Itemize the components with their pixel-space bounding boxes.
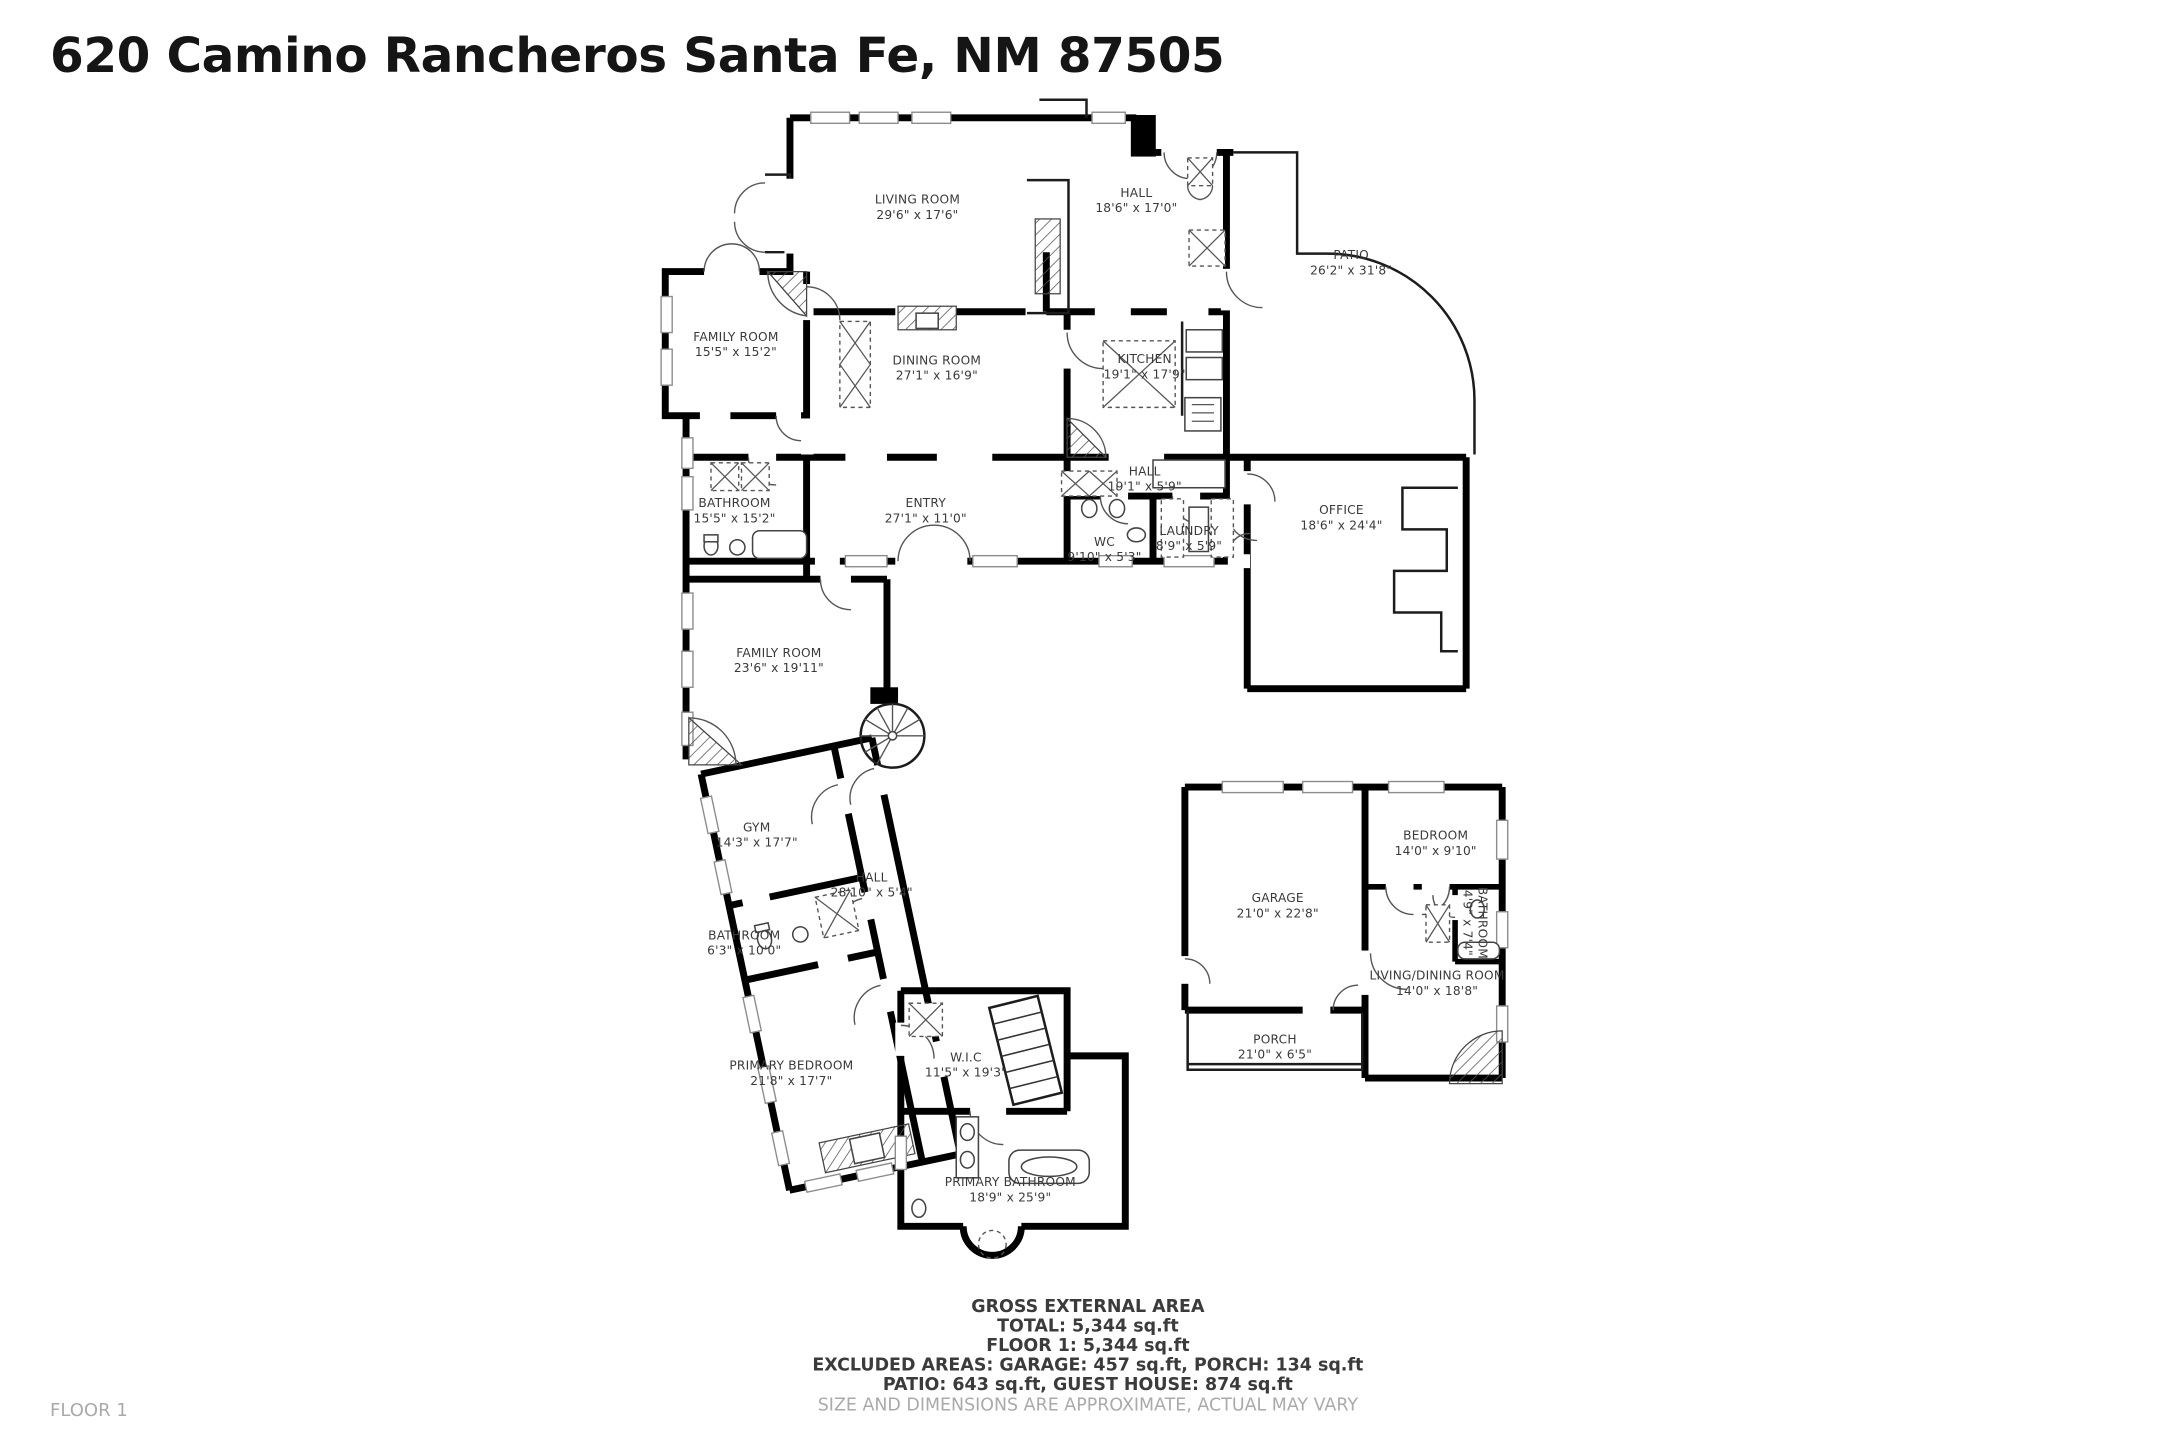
- door-arc: [735, 183, 765, 252]
- door-arc: [1333, 985, 1358, 1010]
- range: [1185, 398, 1221, 431]
- room-label-family-room-2: FAMILY ROOM23'6" x 19'11": [734, 646, 824, 675]
- sink: [960, 1124, 974, 1141]
- toilet: [1127, 528, 1145, 542]
- patio-outline: [1233, 152, 1474, 454]
- sink: [730, 540, 745, 555]
- living-room-fireplace: [1035, 219, 1060, 294]
- room-labels: LIVING ROOM29'6" x 17'6" HALL18'6" x 17'…: [693, 186, 1504, 1205]
- guest-fireplace: [1450, 1031, 1503, 1084]
- room-label-entry: ENTRY27'1" x 11'0": [885, 496, 967, 525]
- room-label-living-room: LIVING ROOM29'6" x 17'6": [875, 193, 960, 222]
- area-summary: GROSS EXTERNAL AREA TOTAL: 5,344 sq.ft F…: [812, 1297, 1363, 1415]
- room-label-guest-bedroom: BEDROOM14'0" x 9'10": [1395, 829, 1477, 858]
- summary-floor1: FLOOR 1: 5,344 sq.ft: [986, 1336, 1189, 1356]
- room-label-dining-room: DINING ROOM27'1" x 16'9": [893, 353, 982, 382]
- family-room2-fireplace: [689, 718, 742, 765]
- kitchen-counter: [1186, 357, 1222, 379]
- room-label-bathroom-2: BATHROOM6'3" x 10'0": [707, 928, 781, 957]
- room-label-hall-upper: HALL18'6" x 17'0": [1095, 186, 1177, 215]
- office-shelving: [1394, 488, 1458, 652]
- floor-label: FLOOR 1: [50, 1400, 128, 1421]
- summary-heading: GROSS EXTERNAL AREA: [971, 1297, 1205, 1317]
- floor-plan-canvas: 620 Camino Rancheros Santa Fe, NM 87505 …: [0, 0, 2173, 1448]
- summary-total: TOTAL: 5,344 sq.ft: [997, 1317, 1179, 1337]
- room-label-bathroom-1: BATHROOM15'5" x 15'2": [693, 496, 775, 525]
- sink: [1082, 500, 1097, 518]
- room-label-primary-bathroom: PRIMARY BATHROOM18'9" x 25'9": [945, 1175, 1076, 1204]
- summary-excluded-2: PATIO: 643 sq.ft, GUEST HOUSE: 874 sq.ft: [883, 1375, 1293, 1395]
- room-label-family-room-1: FAMILY ROOM15'5" x 15'2": [693, 330, 778, 359]
- summary-disclaimer: SIZE AND DIMENSIONS ARE APPROXIMATE, ACT…: [818, 1396, 1359, 1416]
- door-arc: [1188, 186, 1213, 200]
- room-label-guest-living-dining: LIVING/DINING ROOM14'0" x 18'8": [1370, 969, 1505, 998]
- room-label-gym: GYM14'3" x 17'7": [716, 820, 798, 849]
- room-label-office: OFFICE18'6" x 24'4": [1300, 503, 1382, 532]
- room-label-garage: GARAGE21'0" x 22'8": [1237, 891, 1319, 920]
- room-label-porch: PORCH21'0" x 6'5": [1238, 1032, 1312, 1061]
- toilet: [912, 1199, 926, 1217]
- floor-plan-page: 620 Camino Rancheros Santa Fe, NM 87505 …: [0, 0, 2173, 1448]
- kitchen-counter: [1186, 330, 1222, 352]
- room-label-laundry: LAUNDRY8'9" x 5'9": [1156, 524, 1222, 553]
- page-title: 620 Camino Rancheros Santa Fe, NM 87505: [50, 28, 1224, 84]
- summary-excluded-1: EXCLUDED AREAS: GARAGE: 457 sq.ft, PORCH…: [812, 1355, 1363, 1375]
- sink: [1109, 500, 1124, 518]
- spiral-staircase: [861, 704, 925, 768]
- room-label-primary-bedroom: PRIMARY BEDROOM21'8" x 17'7": [729, 1059, 853, 1088]
- room-label-guest-bathroom: BATHROOM4'9" x 7'4": [1460, 887, 1489, 959]
- wing-walls: [696, 737, 967, 1197]
- door-gaps: [700, 147, 1461, 1117]
- sink: [960, 1151, 974, 1168]
- wic-stairs: [989, 996, 1062, 1105]
- bathtub: [753, 531, 807, 559]
